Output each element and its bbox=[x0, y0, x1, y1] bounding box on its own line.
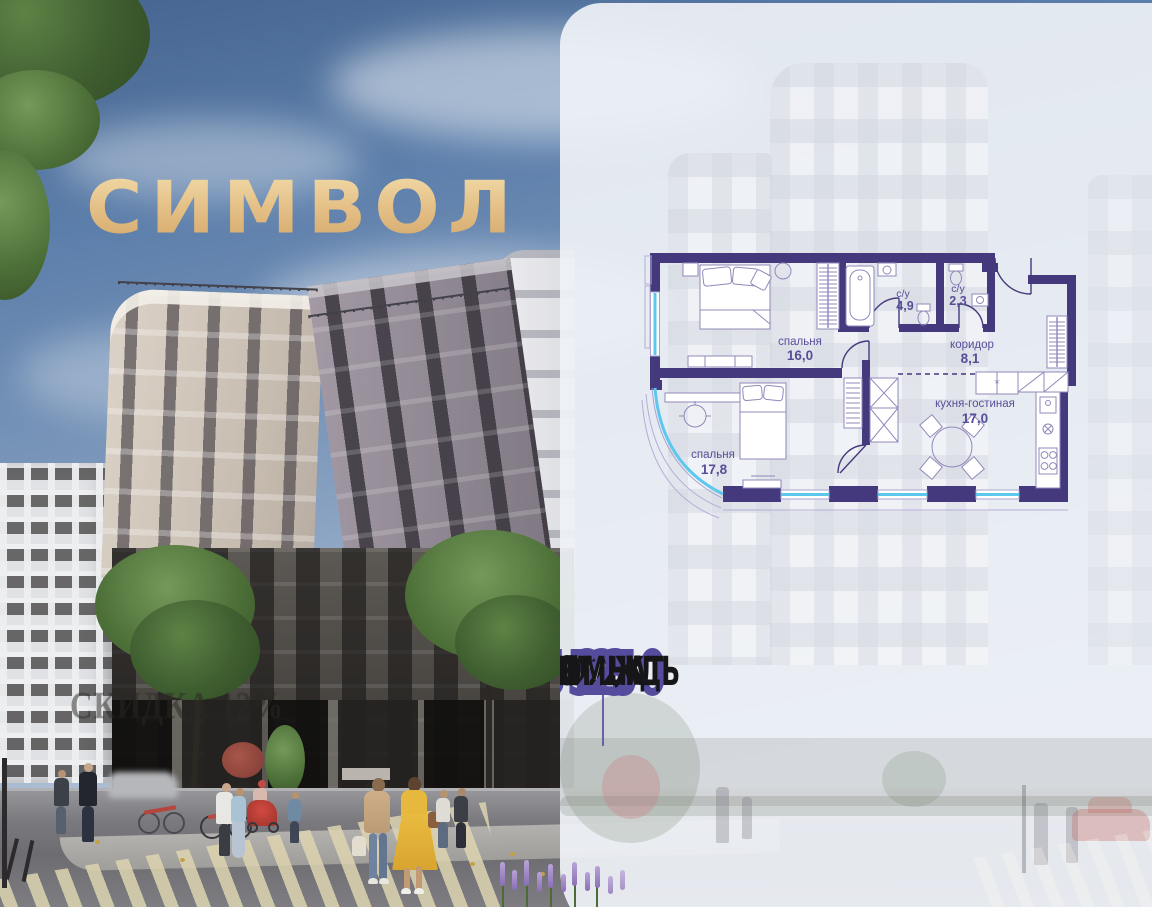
floor-plan: * спальня 16,0 с/у 4,9 с/у 2,3 коридор 8… bbox=[645, 252, 1090, 523]
room-name: спальня bbox=[691, 449, 735, 461]
street-pole bbox=[2, 758, 7, 888]
info-panel: * спальня 16,0 с/у 4,9 с/у 2,3 коридор 8… bbox=[560, 3, 1152, 907]
ghost-pole bbox=[1022, 785, 1026, 873]
room-area: 16,0 bbox=[787, 348, 813, 363]
ghost-person bbox=[716, 787, 729, 843]
bicycle-wheel bbox=[163, 812, 185, 834]
red-bush bbox=[222, 742, 264, 778]
project-logo: СИМВОЛ bbox=[86, 164, 506, 258]
small-tree bbox=[265, 725, 305, 795]
ghost-pink-tree bbox=[602, 755, 660, 819]
room-name: коридор bbox=[950, 339, 994, 351]
rooms-label: КОМНАТ bbox=[560, 653, 663, 691]
shop-sign bbox=[342, 768, 390, 780]
bicycle-wheel bbox=[138, 812, 160, 834]
discount-watermark: СКИДКА 12% bbox=[70, 684, 284, 728]
tree-foliage bbox=[0, 150, 50, 300]
moving-car bbox=[108, 772, 178, 798]
room-area: 2,3 bbox=[949, 294, 966, 308]
tree-crown bbox=[455, 595, 575, 690]
fallen-leaf bbox=[510, 852, 515, 856]
room-area: 4,9 bbox=[896, 299, 913, 313]
room-name: кухня-гостиная bbox=[935, 398, 1015, 410]
room-area: 17,8 bbox=[701, 462, 728, 477]
washer-symbol: * bbox=[994, 376, 999, 391]
listing-card[interactable]: СКИДКА 12% СИМВОЛ bbox=[0, 0, 1152, 907]
paper-bag bbox=[352, 836, 366, 856]
room-area: 8,1 bbox=[961, 351, 980, 366]
fallen-leaf bbox=[470, 862, 475, 866]
ghost-tree bbox=[882, 751, 946, 807]
room-area: 17,0 bbox=[962, 411, 988, 426]
apartment-stats: 55.50 ПЛОЩАДЬ 23 ЭТАЖ 2 КОМНАТ bbox=[602, 645, 1107, 755]
main-building-front-face bbox=[101, 288, 324, 586]
fallen-leaf bbox=[180, 858, 185, 862]
ghost-person bbox=[742, 797, 752, 839]
flowers bbox=[492, 860, 642, 907]
room-name: спальня bbox=[778, 336, 822, 348]
ghost-crosswalk bbox=[968, 824, 1152, 907]
ghost-building bbox=[1088, 175, 1152, 665]
fallen-leaf bbox=[95, 840, 100, 844]
